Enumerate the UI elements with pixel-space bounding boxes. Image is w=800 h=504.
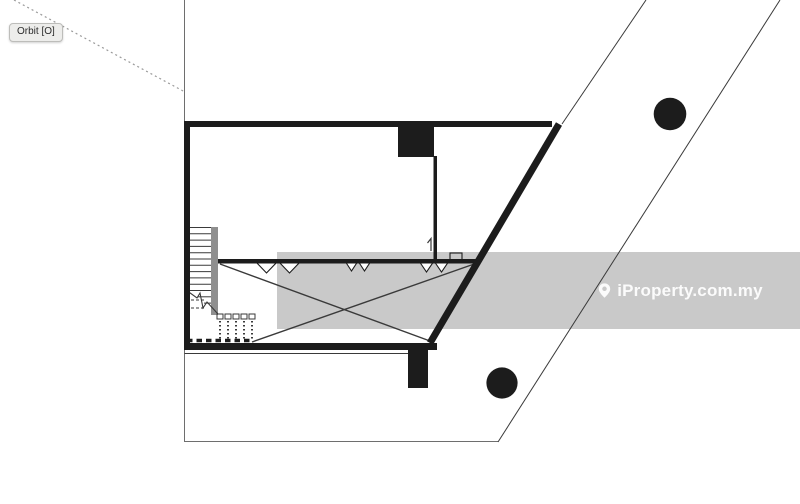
floor-plan-canvas[interactable] — [0, 0, 800, 504]
road-edge-upper-line — [562, 0, 646, 124]
staircase — [186, 227, 218, 315]
lot-boundary-dotted-line — [14, 0, 185, 92]
orbit-tooltip: Orbit [O] — [9, 23, 63, 42]
orbit-tooltip-label: Orbit [O] — [17, 26, 55, 37]
wall-left — [184, 121, 190, 350]
column-block-bottom — [408, 349, 428, 388]
model-viewer-viewport[interactable]: iProperty.com.my Orbit [O] — [0, 0, 800, 504]
wall-bottom — [184, 343, 437, 350]
road-edge-lower-line — [498, 0, 780, 442]
stair-stringer-strip — [211, 227, 218, 315]
black-dot-marker-bottom — [486, 367, 517, 398]
column-block-top — [398, 121, 434, 157]
hidden-edge-dotted-columns — [217, 314, 255, 341]
interior-walls — [218, 156, 477, 264]
wall-top — [184, 121, 552, 127]
wall-interior-horizontal — [218, 259, 477, 264]
door-swing-tick — [428, 239, 432, 252]
wall-interior-vertical — [434, 156, 438, 259]
black-dot-marker-top — [654, 98, 687, 131]
